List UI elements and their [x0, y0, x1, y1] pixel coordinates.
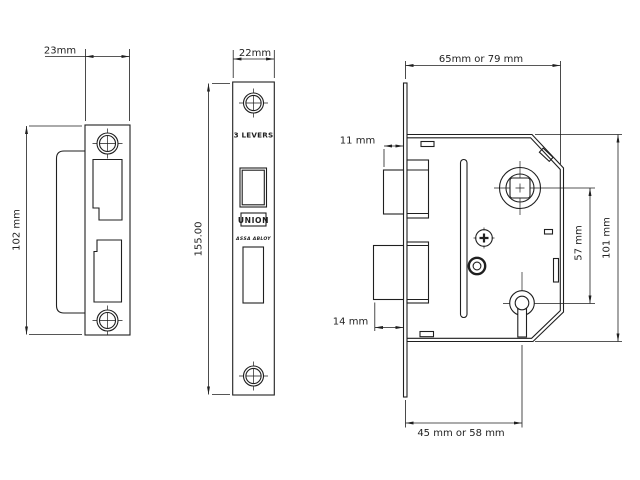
phillips-screw-icon — [474, 228, 495, 249]
faceplate-view: 3 LEVERS UNION ASSA ABLOY 22mm — [194, 48, 275, 395]
faceplate-width-dimension: 22mm — [233, 48, 274, 78]
latch-projection-dimension: 11 mm — [340, 136, 404, 168]
dim-label-faceplate-width: 22mm — [239, 48, 271, 59]
levers-label: 3 LEVERS — [234, 131, 274, 140]
dim-label-strike-width: 23mm — [44, 46, 76, 57]
dim-label-backset: 45 mm or 58 mm — [417, 428, 504, 439]
case-slot-right — [554, 259, 559, 283]
faceplate-height-dimension: 155.00 — [194, 84, 231, 395]
deadbolt — [374, 242, 429, 303]
strike-plate-view: 23mm 102 mm — [12, 46, 131, 336]
case-depth-dimension: 65mm or 79 mm — [406, 54, 561, 164]
case-height-dimension: 101 mm — [602, 135, 619, 342]
dim-label-latch-projection: 11 mm — [340, 136, 375, 147]
spring-slot — [461, 160, 468, 318]
dim-label-centres: 57 mm — [574, 225, 585, 260]
spindle-follower — [494, 161, 595, 215]
technical-drawing: 23mm 102 mm 3 LEVERS UNION ASSA ABLOY — [0, 0, 640, 480]
lock-case-view: 65mm or 79 mm 11 mm 14 mm 57 mm 101 mm — [333, 54, 622, 439]
case-tab — [545, 230, 553, 235]
brand-text: UNION — [238, 216, 269, 225]
case-tab — [420, 332, 434, 337]
dim-label-case-depth: 65mm or 79 mm — [439, 54, 523, 65]
strike-plate-height-dimension: 102 mm — [12, 126, 83, 335]
case-tab — [421, 142, 434, 147]
forend-plate — [404, 83, 408, 397]
lock-drawing-canvas: 23mm 102 mm 3 LEVERS UNION ASSA ABLOY — [0, 0, 640, 480]
backset-dimension: 45 mm or 58 mm — [406, 345, 523, 439]
dim-label-strike-height: 102 mm — [12, 209, 23, 251]
dim-label-faceplate-height: 155.00 — [194, 222, 205, 257]
keyhole-icon — [503, 272, 595, 337]
brand-sub-text: ASSA ABLOY — [235, 236, 271, 242]
dim-label-case-height: 101 mm — [602, 217, 613, 259]
dim-label-bolt-projection: 14 mm — [333, 317, 368, 328]
dust-box — [57, 151, 86, 313]
centres-dimension: 57 mm — [574, 188, 591, 304]
strike-plate-width-dimension: 23mm — [44, 46, 130, 122]
fixing-bush — [469, 258, 485, 274]
bolt-projection-dimension: 14 mm — [333, 303, 404, 332]
